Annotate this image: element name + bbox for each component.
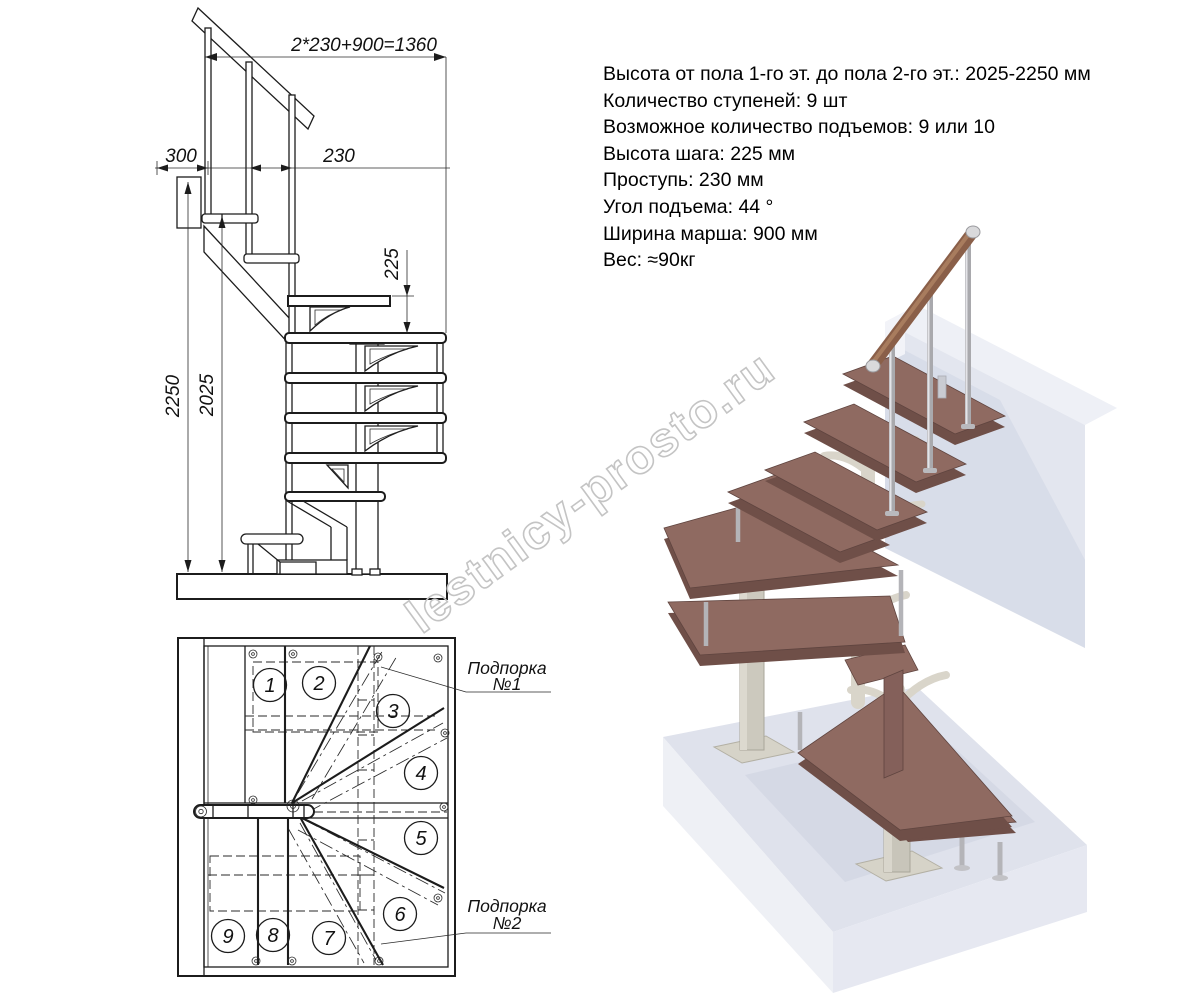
stair-drawing-page: 2*230+900=1360 300 230 225 2250: [0, 0, 1191, 993]
plan-step-number-8: 8: [267, 925, 278, 947]
svg-text:2*230+900=1360: 2*230+900=1360: [290, 35, 437, 56]
plan-step-number-9: 9: [222, 926, 233, 948]
platform: [288, 296, 390, 306]
watermark-text: lestnicy-prosto.ru: [397, 341, 785, 643]
spec-line: Угол подъема: 44 °: [603, 194, 1091, 221]
svg-text:225: 225: [382, 248, 403, 281]
elevation-view: 2*230+900=1360 300 230 225 2250: [155, 8, 450, 599]
plan-step-number-2: 2: [312, 673, 324, 695]
dim-overhang-and-tread: 300 230: [155, 146, 450, 175]
winder-bar-3: [285, 413, 446, 423]
svg-text:№1: №1: [493, 674, 522, 694]
svg-text:№2: №2: [493, 913, 522, 933]
dim-height-2250: 2250: [163, 182, 192, 572]
tread-elev-b: [244, 254, 299, 263]
spec-line: Высота шага: 225 мм: [603, 141, 1091, 168]
wall-bracket: [177, 177, 201, 228]
entry-step: [241, 501, 347, 574]
spec-line: Возможное количество подъемов: 9 или 10: [603, 114, 1091, 141]
spec-line: Вес: ≈90кг: [603, 247, 1091, 274]
spec-line: Высота от пола 1-го эт. до пола 2-го эт.…: [603, 61, 1091, 88]
right-support: [437, 343, 443, 463]
svg-text:2250: 2250: [163, 374, 184, 418]
spec-line: Количество ступеней: 9 шт: [603, 88, 1091, 115]
plan-step-number-5: 5: [415, 828, 427, 850]
winder-bar-5: [285, 492, 385, 501]
tread-elev-a: [202, 214, 258, 223]
plan-step-number-1: 1: [264, 675, 275, 697]
stair-3d-render: [663, 226, 1117, 993]
plan-step-number-4: 4: [415, 763, 426, 785]
spec-line: Ширина марша: 900 мм: [603, 221, 1091, 248]
plan-step-number-3: 3: [387, 701, 398, 723]
plan-view: 1 2 3 4 5 6 7 8 9 Подпорка №1 Подпорка №…: [178, 638, 551, 976]
winder-bar-2: [285, 373, 446, 383]
dim-overhang-300: 300: [165, 146, 197, 167]
spec-line: Проступь: 230 мм: [603, 167, 1091, 194]
dim-rise-225: 225: [382, 248, 414, 333]
wall-plate: [938, 376, 946, 398]
specs-panel: Высота от пола 1-го эт. до пола 2-го эт.…: [603, 61, 1091, 274]
plan-step-number-7: 7: [323, 928, 335, 950]
winder-bar-4: [285, 453, 446, 463]
plan-step-number-6: 6: [394, 904, 406, 926]
dim-tread-230: 230: [322, 146, 355, 167]
svg-text:2025: 2025: [197, 373, 218, 417]
winder-bar-1: [285, 333, 446, 343]
